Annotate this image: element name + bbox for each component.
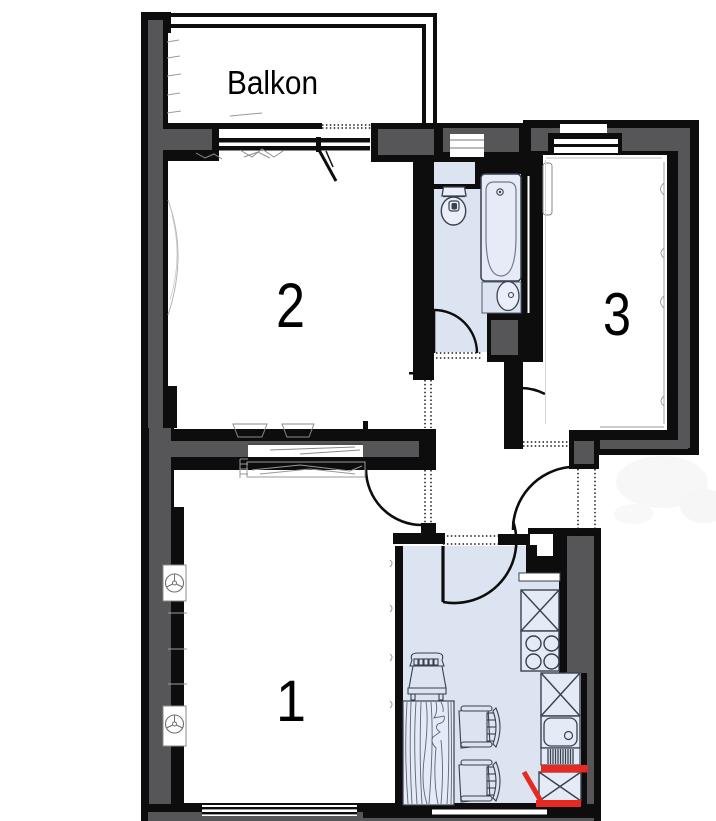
svg-text:2: 2: [276, 271, 305, 341]
svg-text:3: 3: [603, 281, 631, 348]
svg-text:Balkon: Balkon: [227, 64, 318, 101]
svg-text:1: 1: [276, 669, 306, 734]
